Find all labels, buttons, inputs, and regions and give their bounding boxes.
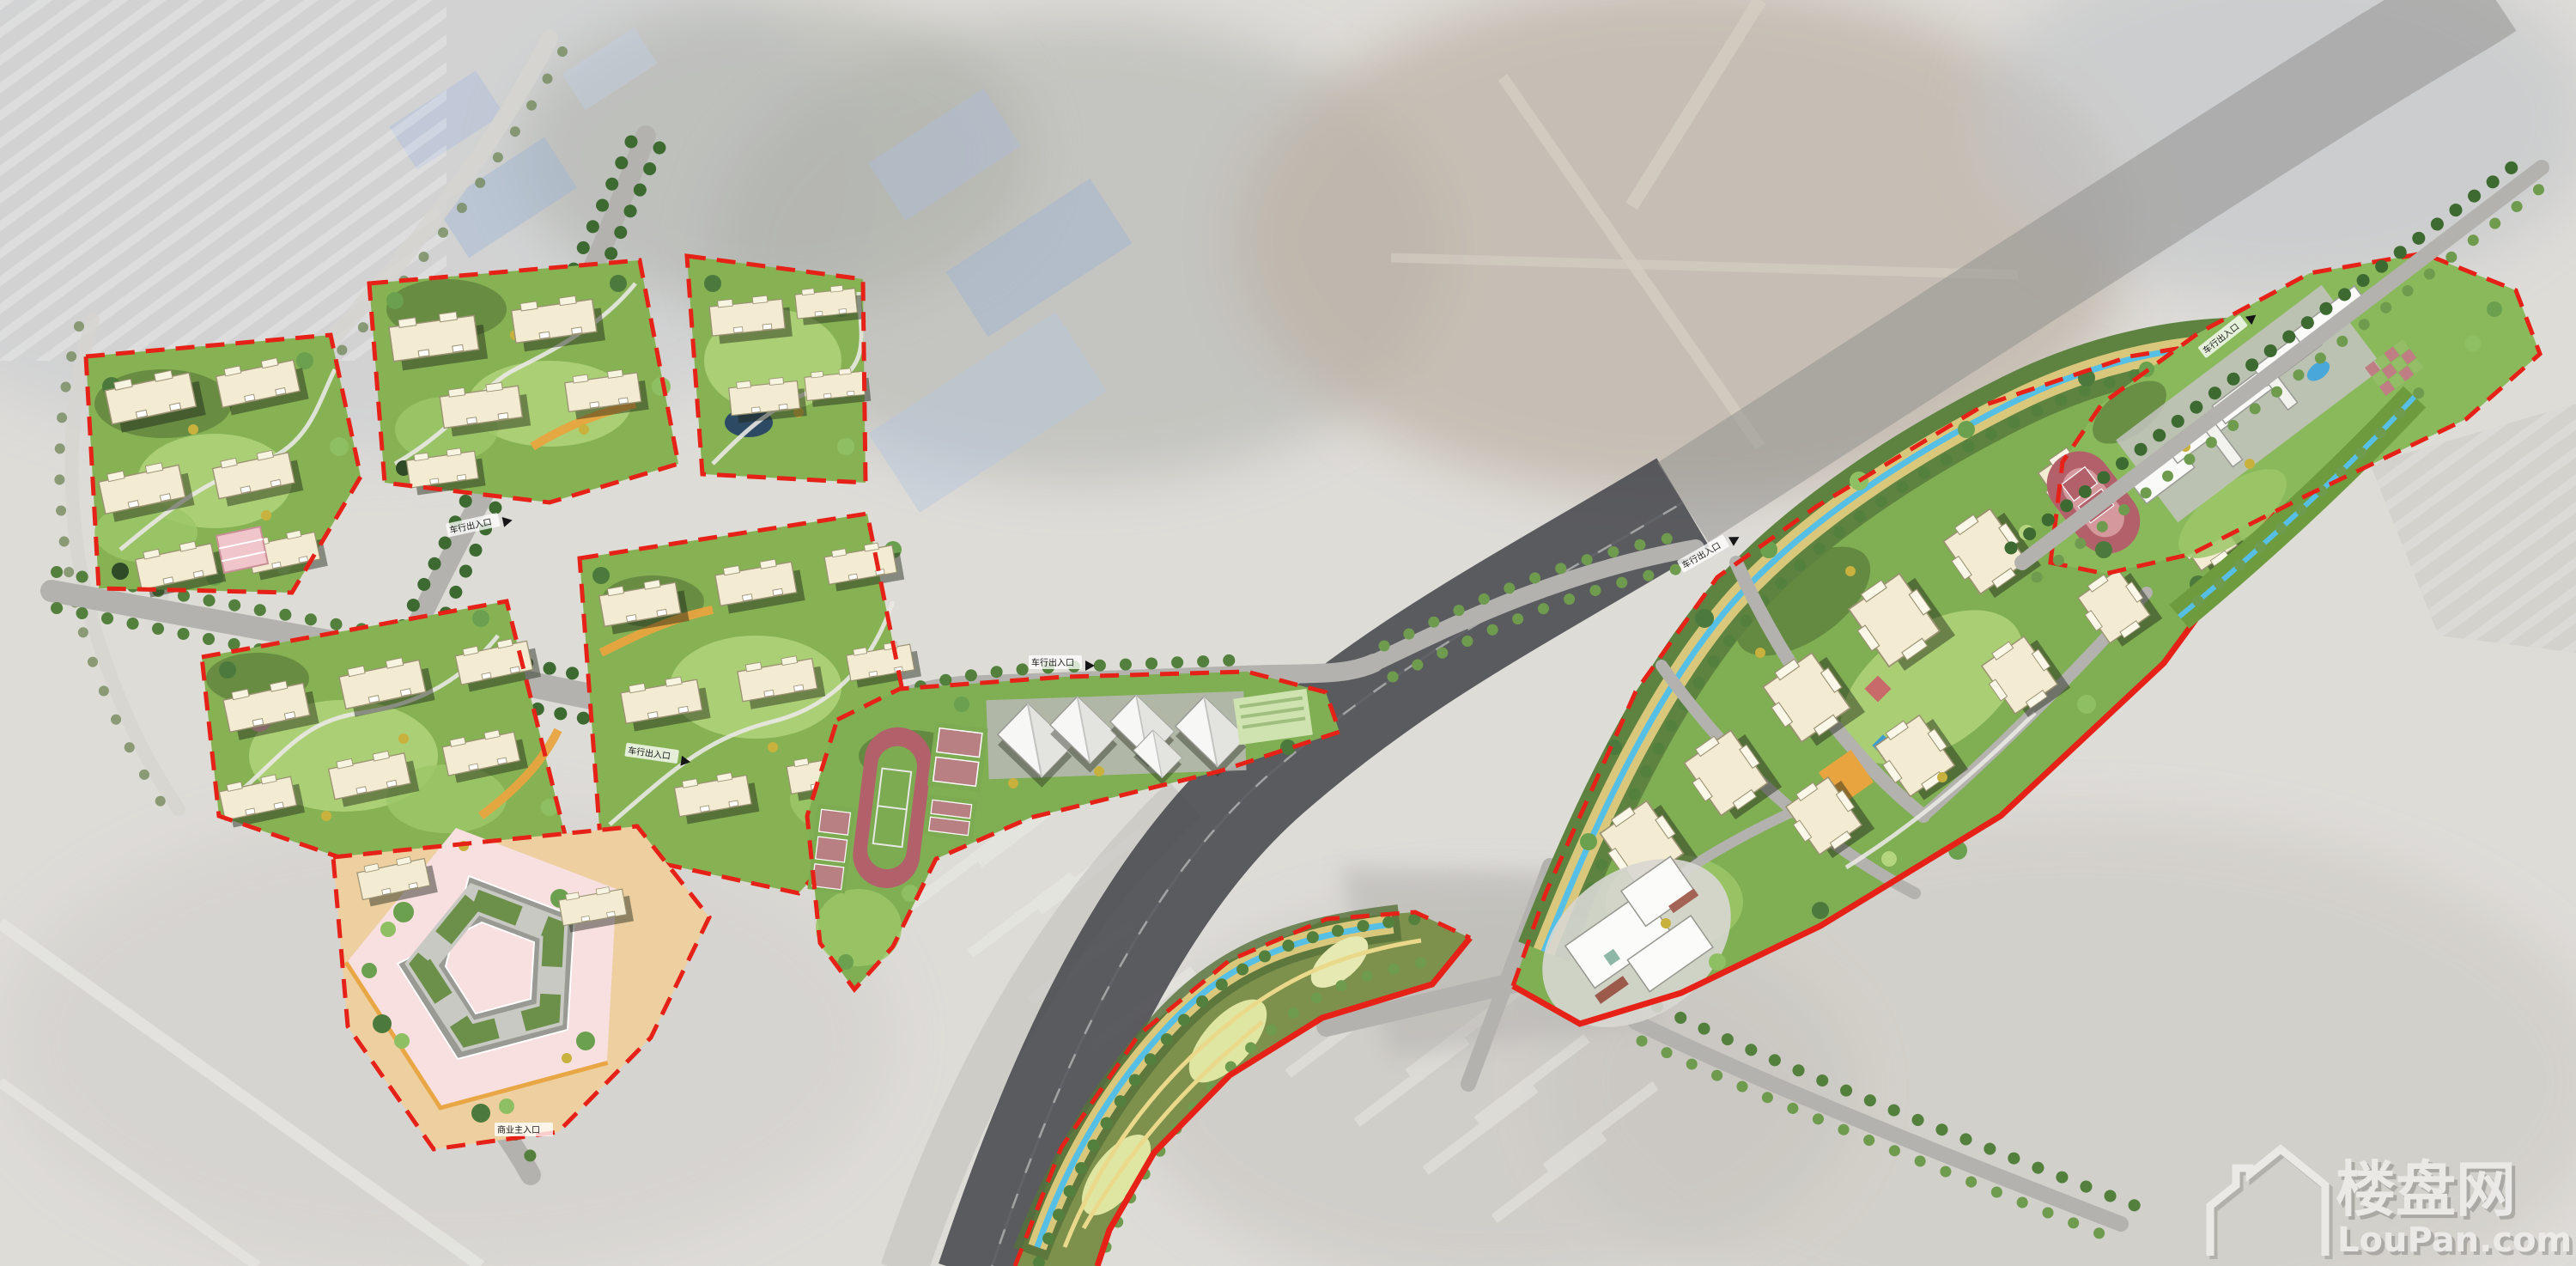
block-northeast: [687, 256, 871, 483]
svg-text:车行出入口: 车行出入口: [1031, 657, 1074, 668]
map-canvas: 车行出入口 车行出入口 车行出入口 车行出入口 车行出入口 商业主入口 楼盘网 …: [0, 0, 2576, 1266]
block-north-middle: [369, 260, 678, 502]
block-nw: [86, 335, 361, 599]
watermark-domain: LouPan.com: [2337, 1220, 2572, 1260]
masterplan-map: 车行出入口 车行出入口 车行出入口 车行出入口 车行出入口 商业主入口 楼盘网 …: [0, 0, 2576, 1266]
svg-text:商业主入口: 商业主入口: [497, 1124, 540, 1135]
commercial-entrance-label: 商业主入口: [495, 1123, 553, 1136]
kindergarten-play-area: [216, 526, 268, 573]
watermark-brand: 楼盘网: [2336, 1154, 2516, 1225]
